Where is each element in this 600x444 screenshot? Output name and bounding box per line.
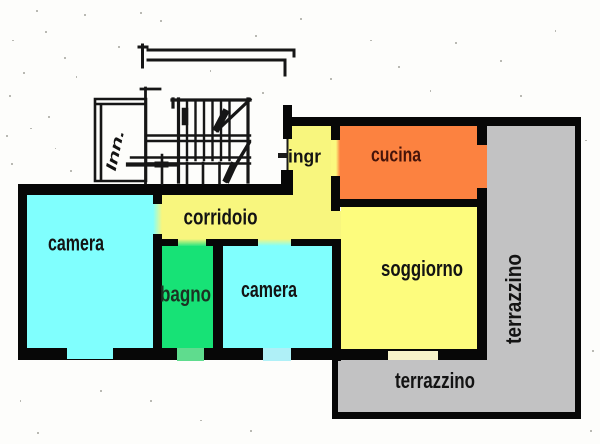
svg-text:camera: camera <box>241 277 298 302</box>
svg-text:ingr: ingr <box>288 147 321 167</box>
svg-text:terrazzino: terrazzino <box>501 254 526 344</box>
svg-text:camera: camera <box>48 231 105 256</box>
svg-text:corridoio: corridoio <box>184 205 258 230</box>
svg-text:soggiorno: soggiorno <box>381 256 463 281</box>
svg-text:bagno: bagno <box>160 282 211 307</box>
svg-text:cucina: cucina <box>371 145 422 167</box>
svg-text:terrazzino: terrazzino <box>395 368 475 393</box>
